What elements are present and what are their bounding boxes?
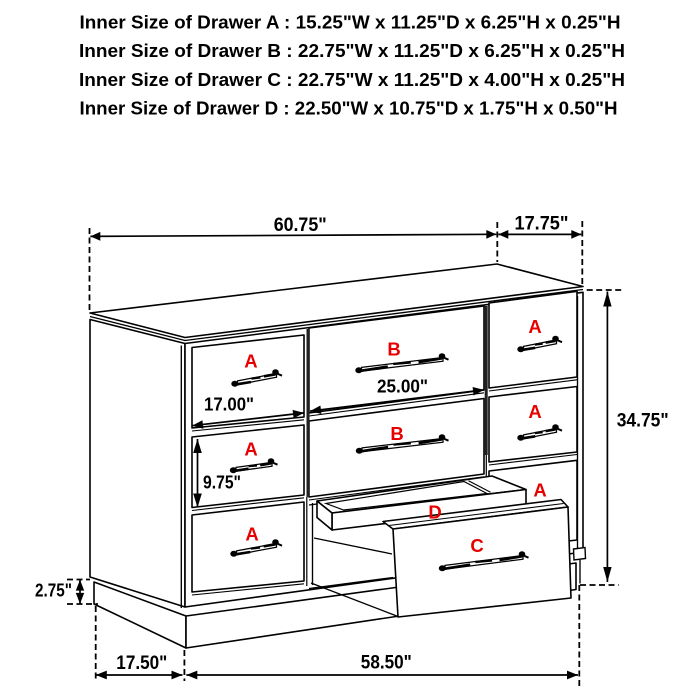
svg-text:A: A bbox=[244, 438, 257, 459]
svg-text:A: A bbox=[528, 401, 541, 422]
svg-text:A: A bbox=[244, 351, 257, 372]
svg-text:25.00": 25.00" bbox=[377, 376, 428, 396]
svg-text:9.75": 9.75" bbox=[203, 473, 241, 493]
svg-text:Inner Size of Drawer D : 22.5: Inner Size of Drawer D : 22.50"W x 10.75… bbox=[80, 97, 618, 118]
svg-text:34.75": 34.75" bbox=[617, 411, 669, 432]
svg-text:B: B bbox=[387, 338, 400, 359]
svg-text:17.50": 17.50" bbox=[116, 653, 167, 674]
svg-text:C: C bbox=[470, 535, 483, 556]
svg-text:A: A bbox=[533, 479, 546, 500]
svg-text:60.75": 60.75" bbox=[274, 215, 327, 236]
svg-text:17.00": 17.00" bbox=[204, 395, 254, 415]
svg-text:D: D bbox=[428, 501, 441, 522]
svg-text:Inner Size of Drawer B : 22.75: Inner Size of Drawer B : 22.75"W x 11.25… bbox=[79, 40, 625, 61]
svg-text:A: A bbox=[245, 523, 258, 544]
svg-text:17.75": 17.75" bbox=[515, 213, 569, 234]
svg-text:Inner Size of Drawer A : 15.25: Inner Size of Drawer A : 15.25"W x 11.25… bbox=[80, 12, 621, 33]
svg-text:B: B bbox=[390, 423, 403, 444]
svg-text:Inner Size of Drawer C : 22.75: Inner Size of Drawer C : 22.75"W x 11.25… bbox=[79, 69, 625, 90]
svg-text:A: A bbox=[528, 316, 541, 337]
svg-text:2.75": 2.75" bbox=[35, 580, 72, 600]
svg-text:58.50": 58.50" bbox=[361, 653, 412, 674]
